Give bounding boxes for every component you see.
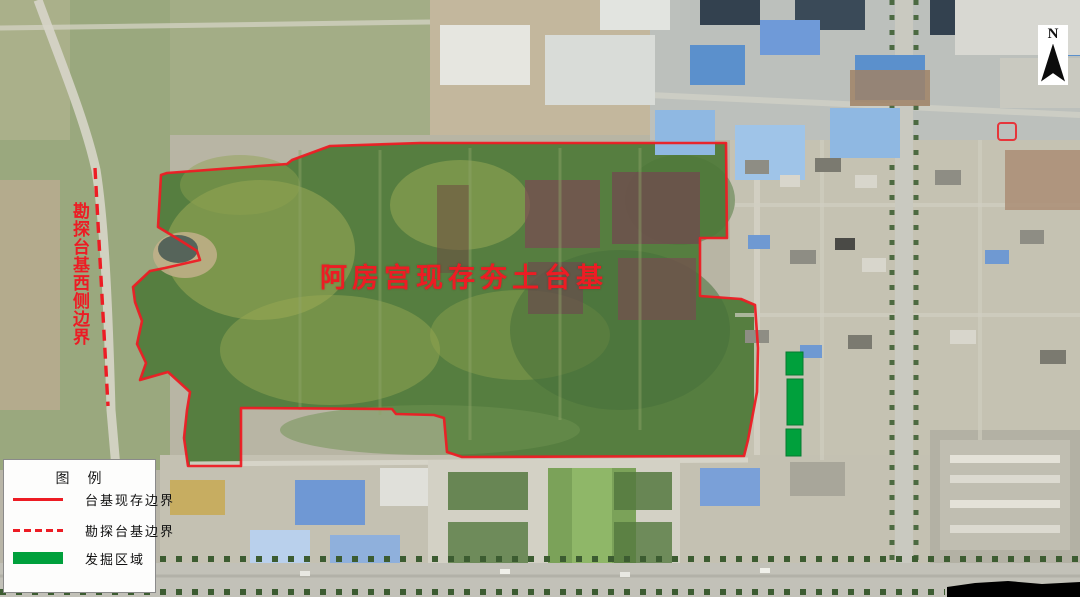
bottom-right-black-bar [947, 581, 1080, 597]
legend-item-label: 发掘区域 [85, 549, 145, 568]
excavation-area-rects [786, 352, 803, 456]
legend-item-explored-boundary: 勘探台基边界 [13, 523, 175, 537]
aerial-map-figure: 阿房宫现存夯土台基 勘探台基西侧边界 N 图 例 台基现存边界 勘探台基边界 发… [0, 0, 1080, 597]
platform-existing-boundary-outline [133, 143, 758, 466]
north-arrow-icon [1041, 44, 1065, 82]
platform-main-label: 阿房宫现存夯土台基 [320, 256, 608, 295]
legend-item-existing-boundary: 台基现存边界 [13, 492, 175, 506]
explored-west-boundary-dashed-line [95, 168, 108, 406]
red-dashed-line-swatch [13, 529, 63, 532]
green-rect-swatch [13, 552, 63, 564]
small-red-marker-rect [998, 123, 1016, 140]
legend-item-excavation-area: 发掘区域 [13, 550, 145, 566]
north-arrow: N [1038, 25, 1068, 85]
red-solid-line-swatch [13, 498, 63, 501]
west-boundary-label: 勘探台基西侧边界 [71, 202, 88, 346]
north-label: N [1048, 26, 1059, 43]
legend-item-label: 勘探台基边界 [85, 521, 175, 540]
legend-panel: 图 例 台基现存边界 勘探台基边界 发掘区域 [3, 459, 156, 593]
legend-item-label: 台基现存边界 [85, 490, 175, 509]
legend-title: 图 例 [4, 468, 155, 488]
